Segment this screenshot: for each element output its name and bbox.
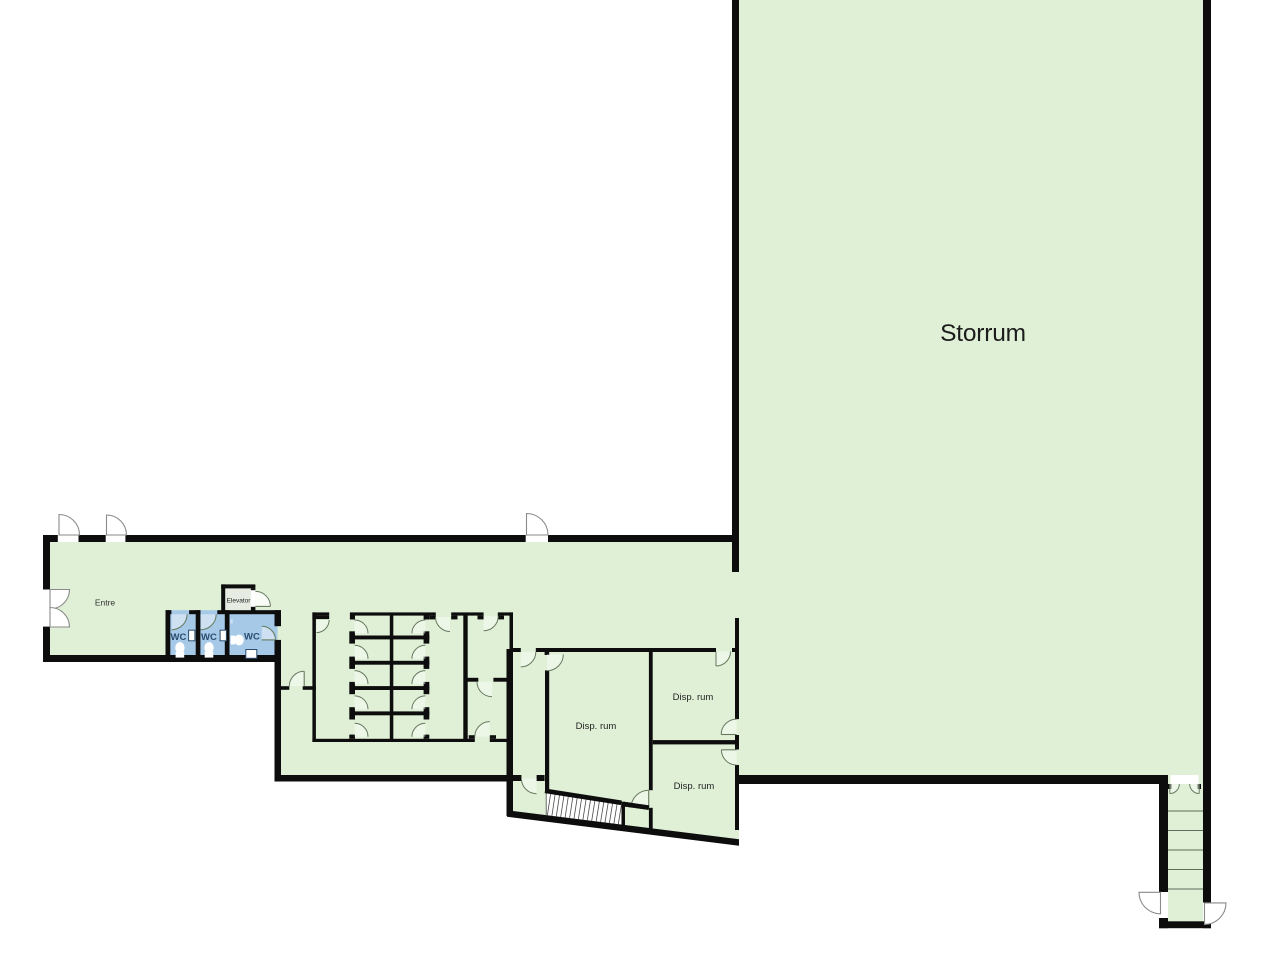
svg-text:Storrum: Storrum — [940, 320, 1026, 347]
svg-text:WC: WC — [201, 632, 217, 643]
svg-text:WC: WC — [170, 632, 186, 643]
svg-text:Elevator: Elevator — [227, 598, 252, 605]
svg-text:Disp. rum: Disp. rum — [674, 781, 715, 792]
svg-text:Disp. rum: Disp. rum — [673, 692, 714, 703]
svg-text:Entre: Entre — [95, 598, 116, 608]
svg-text:Disp. rum: Disp. rum — [576, 721, 617, 732]
svg-text:WC: WC — [244, 632, 260, 643]
